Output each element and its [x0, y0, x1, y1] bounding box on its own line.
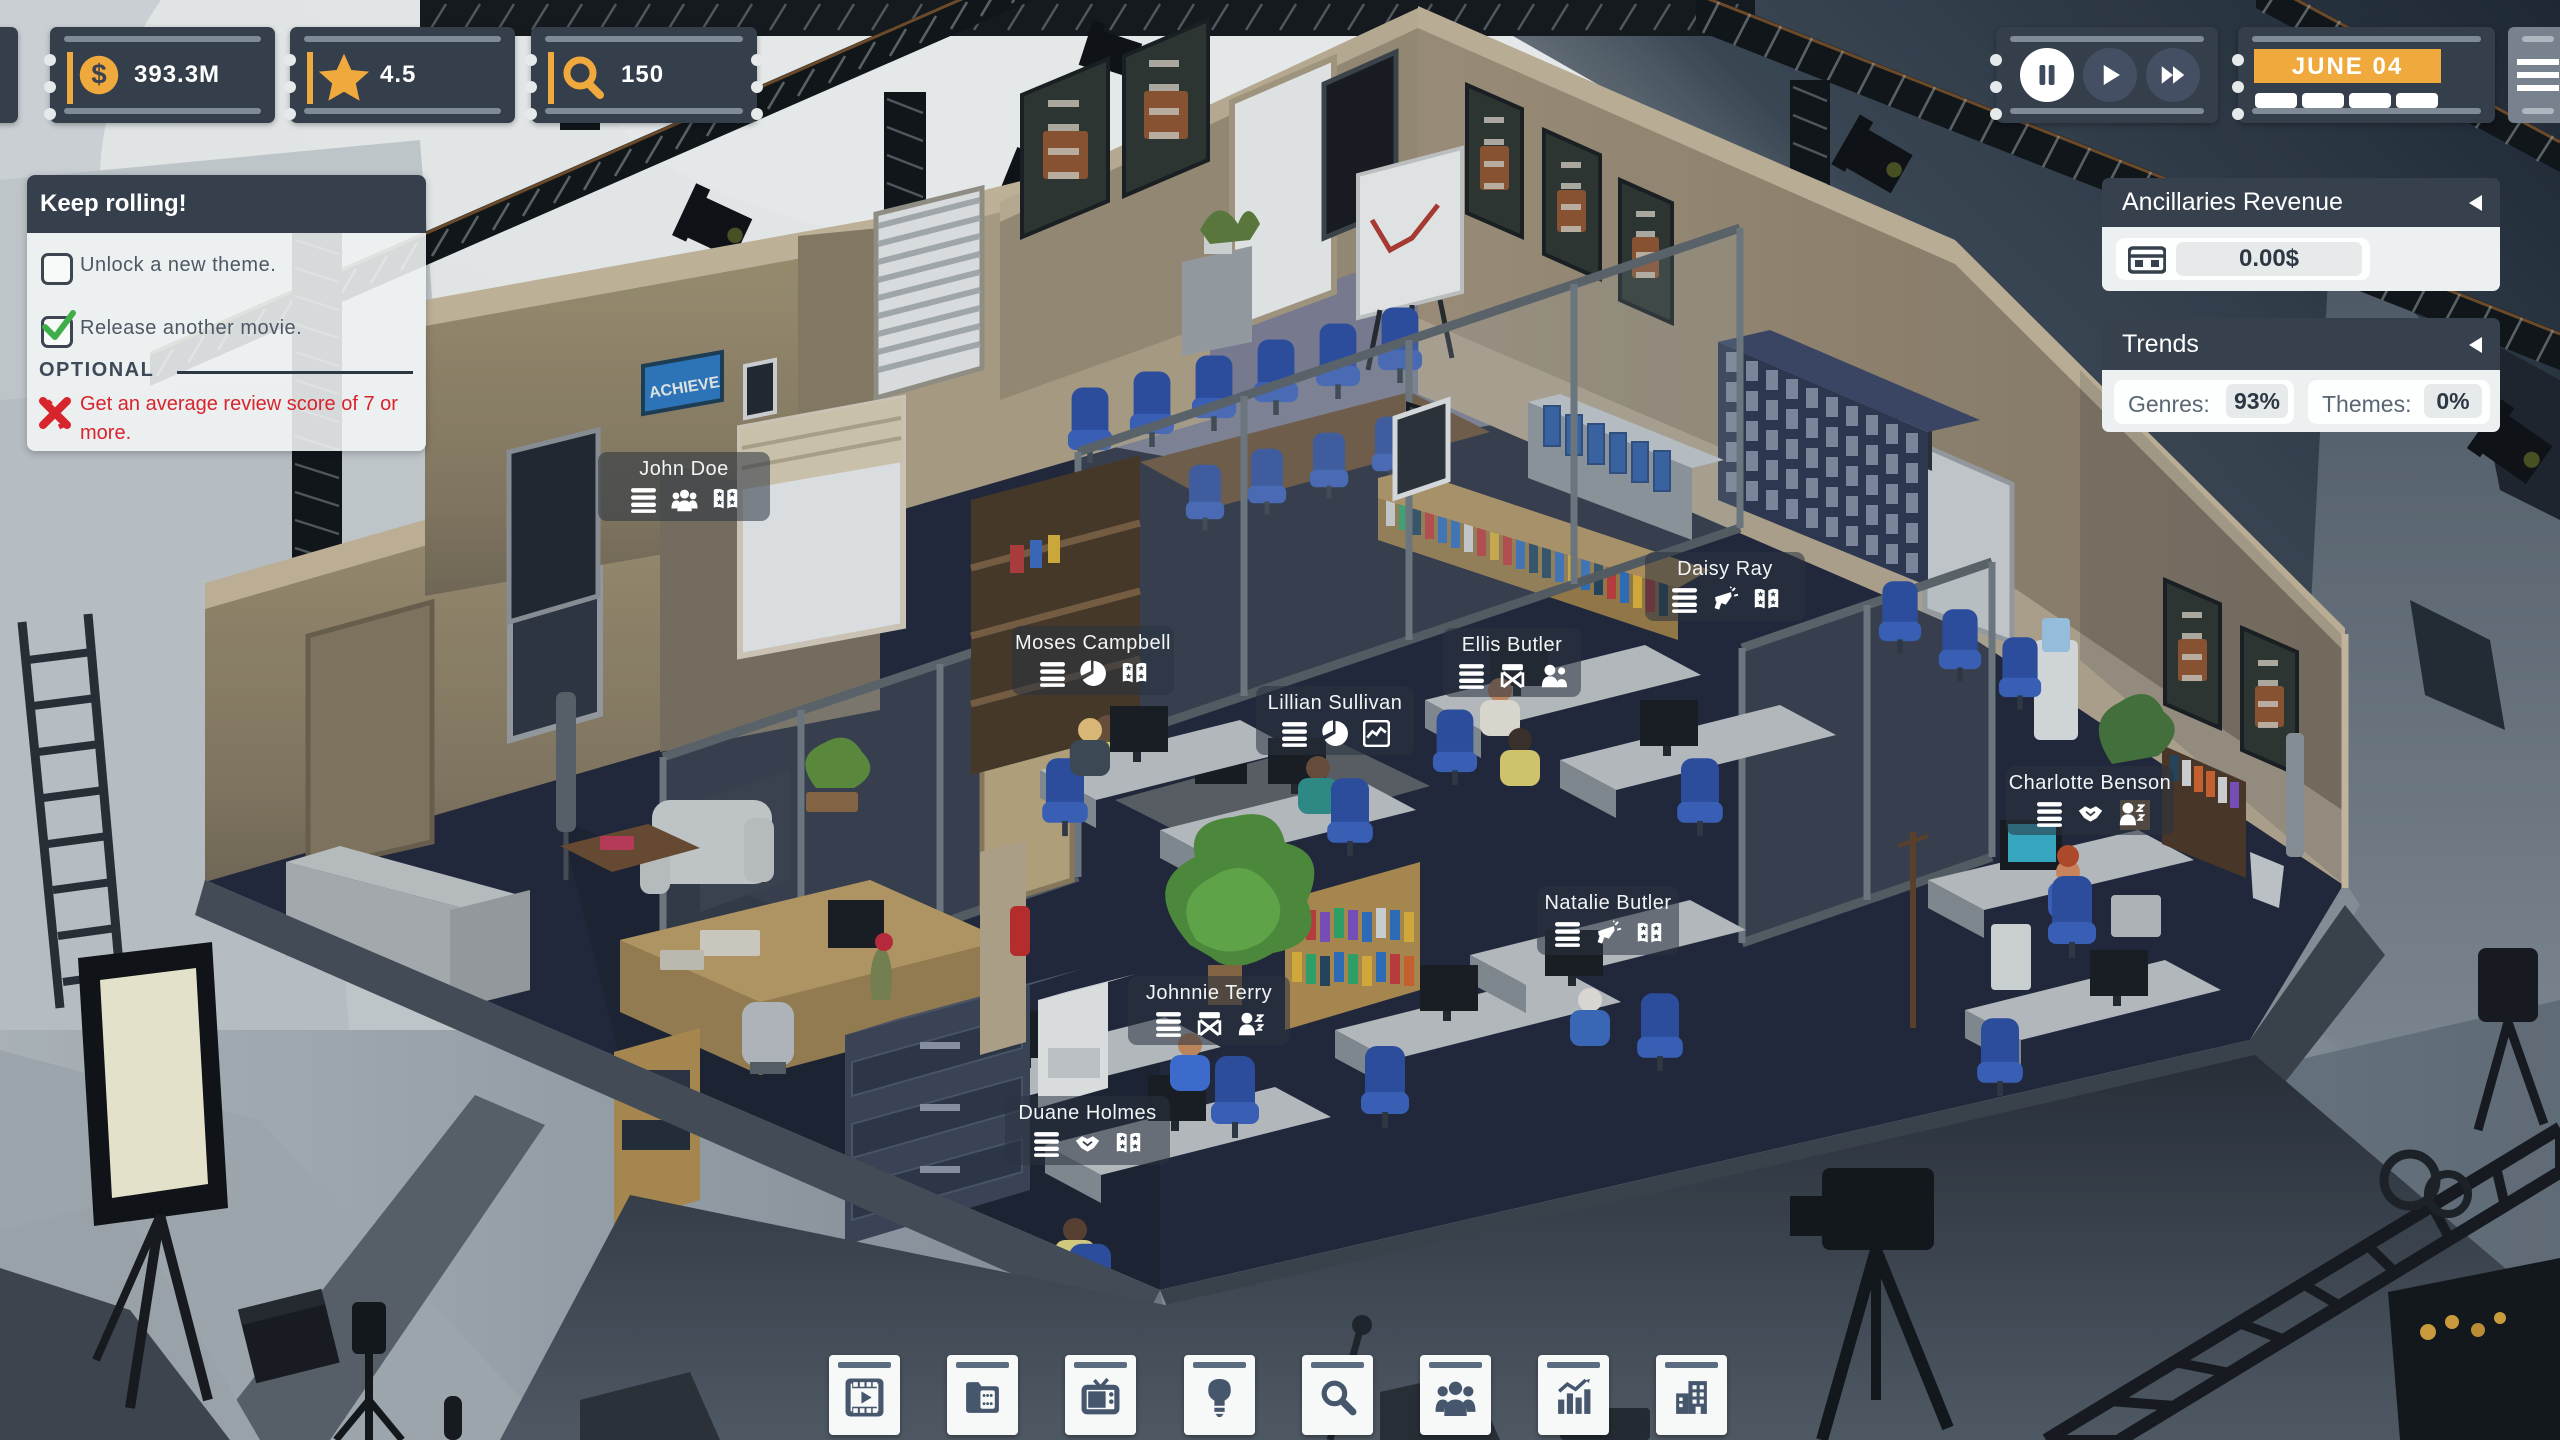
svg-text:$: $ [91, 58, 106, 89]
